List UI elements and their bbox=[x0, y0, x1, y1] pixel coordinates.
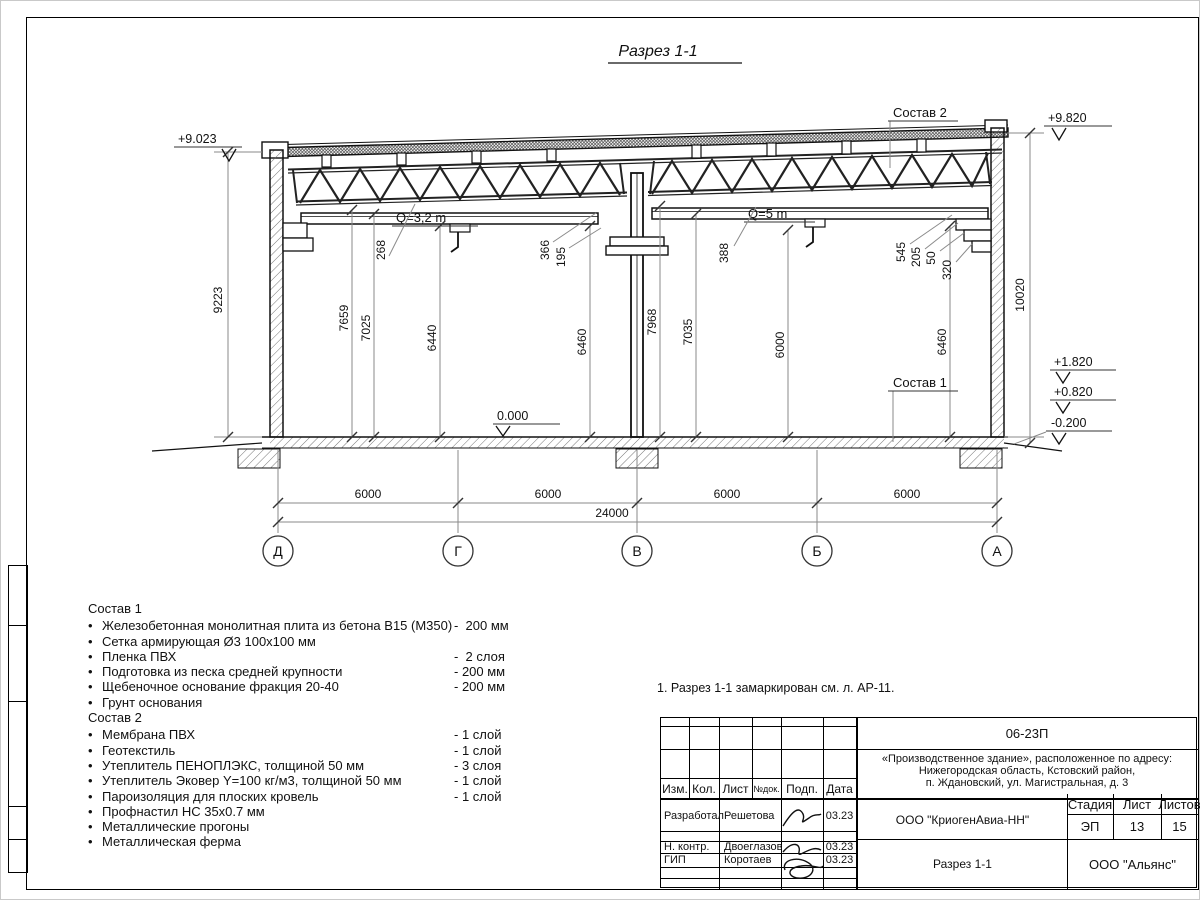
item-name: Утеплитель ПЕНОПЛЭКС, толщиной 50 мм bbox=[102, 758, 454, 773]
item-value: - 1 слой bbox=[454, 789, 502, 804]
doc-code: 06-23П bbox=[856, 720, 1198, 747]
list-item: •Утеплитель ПЕНОПЛЭКС, толщиной 50 мм- 3… bbox=[88, 758, 548, 773]
sheets-value: 15 bbox=[1161, 815, 1198, 838]
project-address-line3: п. Ждановский, ул. Магистральная, д. 3 bbox=[856, 776, 1198, 790]
item-name: Щебеночное основание фракция 20-40 bbox=[102, 679, 454, 694]
row-ncontrol-name: Двоеглазов bbox=[721, 841, 784, 853]
item-name: Железобетонная монолитная плита из бетон… bbox=[102, 618, 454, 633]
comp2-title: Состав 2 bbox=[88, 710, 548, 725]
item-value: - 2 слоя bbox=[454, 649, 505, 664]
list-item: •Подготовка из песка средней крупности- … bbox=[88, 664, 548, 679]
list-item: •Металлическая ферма bbox=[88, 834, 548, 849]
left-stamp-divider bbox=[9, 839, 27, 840]
left-stamp-divider bbox=[9, 701, 27, 702]
drawing-note: 1. Разрез 1-1 замаркирован см. л. АР-11. bbox=[657, 681, 894, 695]
list-item: •Железобетонная монолитная плита из бето… bbox=[88, 618, 548, 633]
list-item: •Пленка ПВХ- 2 слоя bbox=[88, 649, 548, 664]
list-item: •Геотекстиль- 1 слой bbox=[88, 743, 548, 758]
composition-lists: Состав 1 •Железобетонная монолитная плит… bbox=[88, 601, 548, 850]
row-developed-name: Решетова bbox=[721, 800, 784, 831]
signature bbox=[779, 800, 825, 834]
list-item: •Пароизоляция для плоских кровель- 1 сло… bbox=[88, 789, 548, 804]
list-item: •Мембрана ПВХ- 1 слой bbox=[88, 727, 548, 742]
item-value: - 200 мм bbox=[454, 618, 509, 633]
item-value: - 1 слой bbox=[454, 773, 502, 788]
item-name: Грунт основания bbox=[102, 695, 454, 710]
list-item: •Утеплитель Эковер Y=100 кг/м3, толщиной… bbox=[88, 773, 548, 788]
signature bbox=[777, 836, 827, 884]
list-item: •Профнастил НС 35х0.7 мм bbox=[88, 804, 548, 819]
item-value: - 3 слоя bbox=[454, 758, 501, 773]
title-block: 06-23П «Производственное здание», распол… bbox=[660, 717, 1197, 888]
item-name: Подготовка из песка средней крупности bbox=[102, 664, 454, 679]
row-ncontrol-date: 03.23 bbox=[823, 841, 856, 853]
drawing-sheet: Разрез 1-1 bbox=[0, 0, 1200, 900]
left-stamp-divider bbox=[9, 806, 27, 807]
row-gip-date: 03.23 bbox=[823, 853, 856, 867]
company-name: ООО "Альянс" bbox=[1067, 841, 1198, 887]
col-izm: Изм. bbox=[661, 780, 689, 798]
list-item: •Металлические прогоны bbox=[88, 819, 548, 834]
sheet-value: 13 bbox=[1113, 815, 1161, 838]
left-stamp-divider bbox=[9, 625, 27, 626]
col-ndok: №док. bbox=[752, 780, 781, 798]
item-name: Мембрана ПВХ bbox=[102, 727, 454, 742]
row-developed-date: 03.23 bbox=[823, 800, 856, 831]
row-gip-role: ГИП bbox=[661, 853, 722, 867]
col-data: Дата bbox=[823, 780, 856, 798]
item-value: - 1 слой bbox=[454, 743, 502, 758]
org-name: ООО "КриогенАвиа-НН" bbox=[858, 800, 1067, 839]
item-value: - 1 слой bbox=[454, 727, 502, 742]
list-item: •Щебеночное основание фракция 20-40- 200… bbox=[88, 679, 548, 694]
col-podp: Подп. bbox=[781, 780, 823, 798]
row-developed-role: Разработал bbox=[661, 800, 722, 831]
item-value: - 200 мм bbox=[454, 664, 505, 679]
left-stamp-column bbox=[8, 565, 28, 873]
sheet-label: Лист bbox=[1113, 795, 1161, 813]
row-ncontrol-role: Н. контр. bbox=[661, 841, 722, 853]
item-name: Пароизоляция для плоских кровель bbox=[102, 789, 454, 804]
stage-label: Стадия bbox=[1067, 795, 1113, 813]
doc-title: Разрез 1-1 bbox=[858, 841, 1067, 887]
item-name: Геотекстиль bbox=[102, 743, 454, 758]
item-name: Профнастил НС 35х0.7 мм bbox=[102, 804, 454, 819]
col-kol: Кол. bbox=[689, 780, 719, 798]
comp1-title: Состав 1 bbox=[88, 601, 548, 616]
sheets-label: Листов bbox=[1161, 795, 1198, 813]
item-name: Металлические прогоны bbox=[102, 819, 454, 834]
item-name: Сетка армирующая Ø3 100х100 мм bbox=[102, 634, 454, 649]
item-name: Утеплитель Эковер Y=100 кг/м3, толщиной … bbox=[102, 773, 454, 788]
col-list: Лист bbox=[719, 780, 752, 798]
list-item: •Сетка армирующая Ø3 100х100 мм bbox=[88, 634, 548, 649]
item-name: Пленка ПВХ bbox=[102, 649, 454, 664]
item-name: Металлическая ферма bbox=[102, 834, 454, 849]
stage-value: ЭП bbox=[1067, 815, 1113, 838]
item-value: - 200 мм bbox=[454, 679, 505, 694]
row-gip-name: Коротаев bbox=[721, 853, 784, 867]
list-item: •Грунт основания bbox=[88, 695, 548, 710]
